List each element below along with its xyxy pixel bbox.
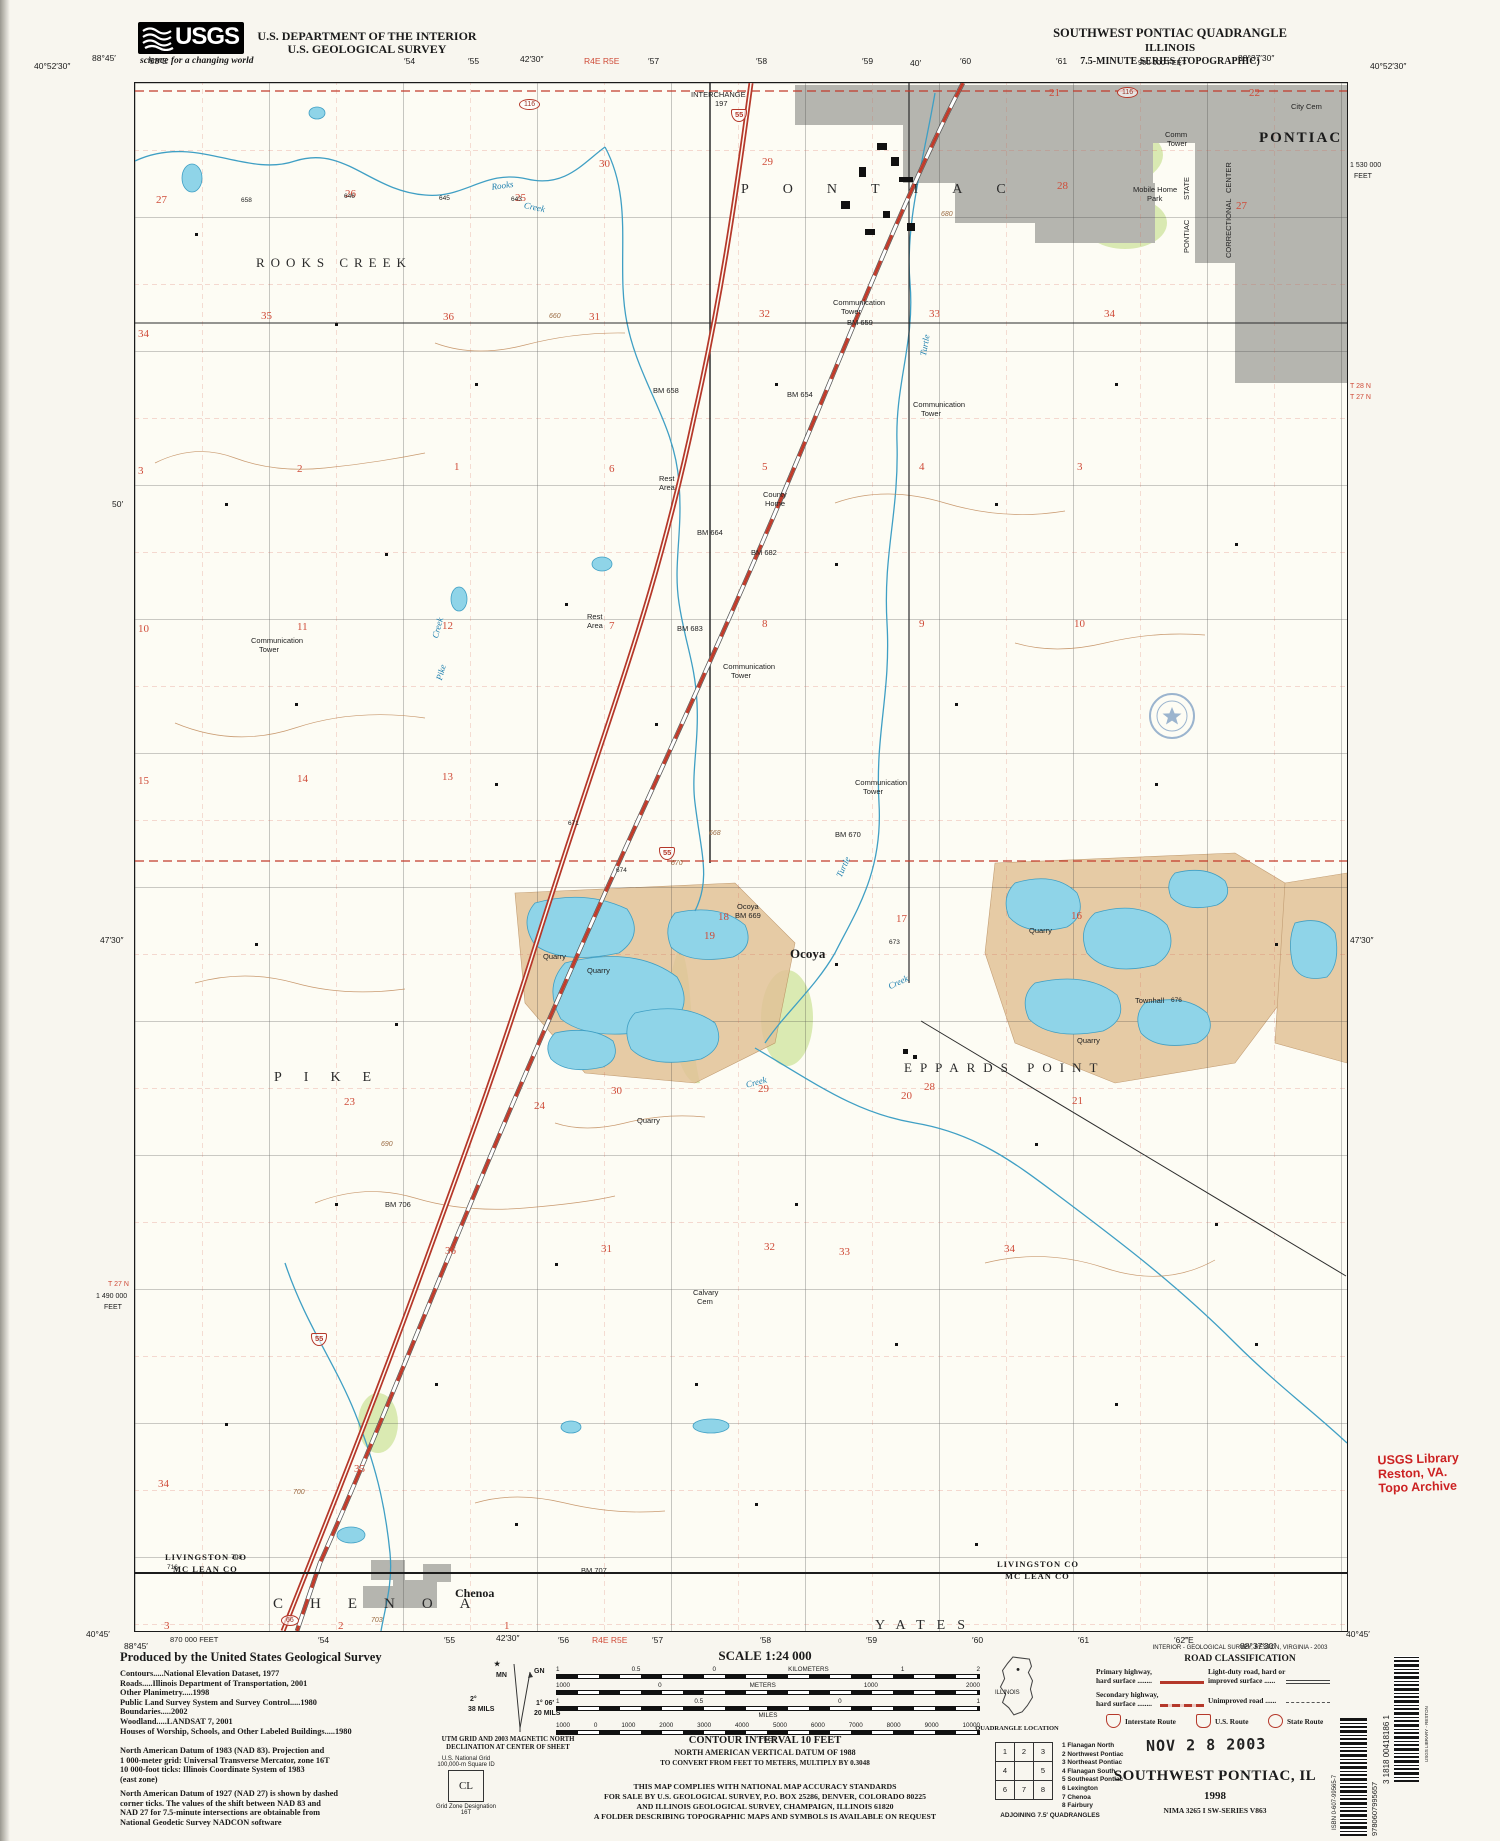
margin-label: 870 000 FEET [170, 1636, 218, 1644]
km-tick: 0.5 [632, 1666, 641, 1673]
margin-label: ′57 [652, 1636, 663, 1645]
quad-location-caption: QUADRANGLE LOCATION [975, 1725, 1059, 1732]
margin-label: 40′ [910, 59, 921, 68]
isbn-label: ISBN 0-607-99565-7 [1332, 1775, 1338, 1830]
map-name: SOUTHWEST PONTIAC, IL [1100, 1768, 1330, 1785]
state-route-shield-icon [1268, 1714, 1283, 1728]
m-tick: METERS [750, 1682, 776, 1689]
usgs-tagline: science for a changing world [140, 56, 253, 66]
mn-mils: 38 MILS [468, 1706, 494, 1713]
ft-tick: 4000 [735, 1722, 749, 1729]
datum-line: corner ticks. The values of the shift be… [120, 1799, 338, 1809]
margin-label: ′58 [756, 57, 767, 66]
illinois-outline-icon [997, 1656, 1037, 1718]
usgs-library-stamp: USGS Library Reston, VA. Topo Archive [1377, 1451, 1460, 1496]
margin-label: ′56 [558, 1636, 569, 1645]
margin-label: T 27 N [108, 1281, 129, 1288]
m-tick: 0 [658, 1682, 662, 1689]
margin-label: ′59 [862, 57, 873, 66]
datum-line: (east zone) [120, 1775, 330, 1785]
library-barcode-number: 3 1818 00418186 1 [1382, 1715, 1391, 1784]
mi-tick: 1 [556, 1698, 560, 1705]
datum-line: North American Datum of 1927 (NAD 27) is… [120, 1789, 338, 1799]
quad-title: SOUTHWEST PONTIAC QUADRANGLE [1040, 26, 1300, 41]
margin-label: 88°45′ [92, 54, 116, 63]
rc-primary-line [1160, 1681, 1204, 1684]
m-ticks: 10000METERS10002000 [556, 1682, 980, 1689]
accuracy-line: A FOLDER DESCRIBING TOPOGRAPHIC MAPS AND… [530, 1812, 1000, 1822]
margin-label: FEET [1354, 173, 1372, 180]
date-received-stamp: NOV 2 8 2003 [1146, 1735, 1267, 1755]
interstate-shield-icon [1106, 1714, 1121, 1728]
credit-line: Public Land Survey System and Survey Con… [120, 1698, 352, 1708]
interstate-shield-legend: Interstate Route [1106, 1714, 1176, 1728]
km-tick: 0 [713, 1666, 717, 1673]
margin-label: ′57 [648, 57, 659, 66]
gn-degrees: 1° 06′ [536, 1700, 554, 1707]
feet-conversion: TO CONVERT FROM FEET TO METERS, MULTIPLY… [600, 1759, 930, 1767]
margin-label: ′55 [468, 57, 479, 66]
usgs-logo-text: USGS [175, 23, 239, 51]
quad-state: ILLINOIS [1040, 42, 1300, 54]
rc-light-line [1286, 1680, 1330, 1684]
ft-tick: 2000 [659, 1722, 673, 1729]
us-route-shield-legend: U.S. Route [1196, 1714, 1248, 1728]
star-symbol: ★ [494, 1660, 500, 1668]
isbn-digits: 9780607995657 [1370, 1782, 1379, 1836]
state-route-shield-legend: State Route [1268, 1714, 1323, 1728]
margin-label: 47′30″ [100, 936, 124, 945]
isbn-barcode [1340, 1718, 1367, 1836]
mi-tick: 0.5 [694, 1698, 703, 1705]
usgs-logo: USGS [138, 22, 244, 54]
contour-block: CONTOUR INTERVAL 10 FEET NORTH AMERICAN … [600, 1735, 930, 1767]
ft-tick: 9000 [925, 1722, 939, 1729]
illinois-label: ILLINOIS [995, 1690, 1020, 1696]
adjoining-grid-cell: 4 [995, 1761, 1015, 1781]
library-barcode [1394, 1656, 1419, 1782]
ft-tick: 0 [594, 1722, 598, 1729]
accuracy-line: THIS MAP COMPLIES WITH NATIONAL MAP ACCU… [530, 1782, 1000, 1792]
ft-tick: 1000 [621, 1722, 635, 1729]
margin-label: ′62‴E [1174, 1636, 1194, 1645]
rc-primary-l2: hard surface ........ [1096, 1677, 1152, 1686]
margin-label: ′54 [318, 1636, 329, 1645]
interstate-shield-label: Interstate Route [1125, 1717, 1176, 1726]
rc-unimproved-line [1286, 1702, 1330, 1703]
m-tick: 1000 [556, 1682, 570, 1689]
margin-label: 40°45′ [1346, 1630, 1370, 1639]
margin-label: ′61 [1078, 1636, 1089, 1645]
road-classification-title: ROAD CLASSIFICATION [1090, 1654, 1390, 1664]
margin-label: ′58 [760, 1636, 771, 1645]
rc-primary-label: Primary highway, hard surface ........ [1096, 1668, 1152, 1685]
ft-tick: 6000 [811, 1722, 825, 1729]
rc-secondary-line [1160, 1704, 1204, 1707]
margin-label: 40°52′30″ [34, 62, 70, 71]
ft-tick: 3000 [697, 1722, 711, 1729]
km-bar [556, 1674, 980, 1679]
margin-label: 42′30″ [496, 1634, 520, 1643]
margin-label: 50′ [112, 500, 123, 509]
adjoining-quad-name: 2 Northwest Pontiac [1062, 1751, 1123, 1760]
km-tick: KILOMETERS [788, 1666, 829, 1673]
margin-label: 1 490 000 [96, 1293, 127, 1300]
margin-label: ′59 [866, 1636, 877, 1645]
ft-tick: 7000 [849, 1722, 863, 1729]
adjoining-grid-cell: 2 [1014, 1742, 1034, 1762]
adjoining-quad-name: 1 Flanagan North [1062, 1742, 1123, 1751]
ft-ticks: 1000010002000300040005000600070008000900… [556, 1722, 980, 1729]
map-year: 1998 [1100, 1790, 1330, 1802]
quadrangle-location: ILLINOIS QUADRANGLE LOCATION [975, 1656, 1059, 1732]
dept-line2: U.S. GEOLOGICAL SURVEY [252, 43, 482, 56]
margin-label: ′55 [444, 1636, 455, 1645]
ft-tick: 1000 [556, 1722, 570, 1729]
usng-box: U.S. National Grid 100,000-m Square ID C… [428, 1756, 504, 1816]
mn-degrees: 2° [470, 1696, 477, 1703]
adjoining-grid: 12345678 [995, 1742, 1052, 1799]
margin-label: ′60 [960, 57, 971, 66]
datum27-block: North American Datum of 1927 (NAD 27) is… [120, 1789, 338, 1827]
credit-line: Boundaries.....2002 [120, 1707, 352, 1717]
margin-label: R4E R5E [592, 1636, 627, 1645]
accuracy-line: AND ILLINOIS GEOLOGICAL SURVEY, CHAMPAIG… [530, 1802, 1000, 1812]
mi-unit: MILES [556, 1712, 980, 1719]
km-tick: 1 [556, 1666, 560, 1673]
adjoining-grid-cell: 3 [1033, 1742, 1053, 1762]
quad-series: 7.5-MINUTE SERIES (TOPOGRAPHIC) [1040, 56, 1300, 67]
us-route-shield-label: U.S. Route [1215, 1717, 1248, 1726]
datum-line: NAD 27 for 7.5-minute intersections are … [120, 1808, 338, 1818]
credit-line: Roads.....Illinois Department of Transpo… [120, 1679, 352, 1689]
rc-secondary-label: Secondary highway, hard surface ........ [1096, 1691, 1158, 1708]
margin-label: R4E R5E [584, 57, 619, 66]
mi-tick: 0 [838, 1698, 842, 1705]
ft-tick: 5000 [773, 1722, 787, 1729]
department-heading: U.S. DEPARTMENT OF THE INTERIOR U.S. GEO… [252, 30, 482, 56]
margin-label: FEET [104, 1304, 122, 1311]
library-barcode-label: USGS LIBRARY - RESTON [1424, 1706, 1429, 1762]
usng-zone: 16T [428, 1810, 504, 1816]
margin-label: 1 530 000 [1350, 162, 1381, 169]
us-route-shield-icon [1196, 1714, 1211, 1728]
ft-tick: 8000 [887, 1722, 901, 1729]
map-area: ROOKS CREEKPONTIACPIKEEPPARDS POINTCHENO… [134, 82, 1348, 1632]
accuracy-line: FOR SALE BY U.S. GEOLOGICAL SURVEY, P.O.… [530, 1792, 1000, 1802]
datum-line: National Geodetic Survey NADCON software [120, 1818, 338, 1828]
gn-label: GN [534, 1668, 545, 1675]
margin-label: ′60 [972, 1636, 983, 1645]
credit-line: Houses of Worship, Schools, and Other La… [120, 1727, 352, 1737]
adjoining-grid-cell [1014, 1761, 1034, 1781]
scan-edge [0, 0, 10, 1841]
margin-label: T 27 N [1350, 394, 1371, 401]
credit-line: Contours.....National Elevation Dataset,… [120, 1669, 352, 1679]
interior-imprint: INTERIOR - GEOLOGICAL SURVEY, RESTON, VI… [1090, 1645, 1390, 1651]
map-artwork [135, 83, 1347, 1631]
mi-bar [556, 1706, 980, 1711]
credit-line: Other Planimetry.....1998 [120, 1688, 352, 1698]
produced-by: Produced by the United States Geological… [120, 1650, 382, 1665]
rc-unimproved-l1: Unimproved road ...... [1208, 1697, 1276, 1706]
accuracy-block: THIS MAP COMPLIES WITH NATIONAL MAP ACCU… [530, 1782, 1000, 1822]
datum-line: North American Datum of 1983 (NAD 83). P… [120, 1746, 330, 1756]
rc-unimproved-label: Unimproved road ...... [1208, 1697, 1276, 1706]
m-tick: 1000 [864, 1682, 878, 1689]
mi-ticks: 10.501 [556, 1698, 980, 1705]
nima-series: NIMA 3265 I SW-SERIES V863 [1100, 1806, 1330, 1815]
usng-square-id: CL [448, 1770, 484, 1802]
stamp-line3: Topo Archive [1378, 1479, 1460, 1496]
margin-label: T 28 N [1350, 383, 1371, 390]
adjoining-grid-cell: 8 [1033, 1780, 1053, 1800]
adjoining-grid-cell: 6 [995, 1780, 1015, 1800]
km-tick: 1 [901, 1666, 905, 1673]
margin-label: 47′30″ [1350, 936, 1374, 945]
datum83-block: North American Datum of 1983 (NAD 83). P… [120, 1746, 330, 1784]
usng-subtitle: 100,000-m Square ID [428, 1762, 504, 1768]
adjoining-quad-name: 3 Northeast Pontiac [1062, 1759, 1123, 1768]
scale-title: SCALE 1:24 000 [600, 1648, 930, 1664]
rc-light-l2: improved surface ...... [1208, 1677, 1285, 1686]
quadrangle-heading: SOUTHWEST PONTIAC QUADRANGLE ILLINOIS 7.… [1040, 26, 1300, 67]
credits-block: Contours.....National Elevation Dataset,… [120, 1669, 352, 1736]
margin-label: 40°45′ [86, 1630, 110, 1639]
mn-label: MN [496, 1672, 507, 1679]
scale-bars: 10.50KILOMETERS12 10000METERS10002000 10… [556, 1666, 980, 1746]
rc-light-label: Light-duty road, hard or improved surfac… [1208, 1668, 1285, 1685]
margin-label: ′54 [404, 57, 415, 66]
adjoining-grid-cell: 1 [995, 1742, 1015, 1762]
datum-line: 1 000-meter grid: Universal Transverse M… [120, 1756, 330, 1766]
state-route-shield-label: State Route [1287, 1717, 1323, 1726]
margin-label: 42′30″ [520, 55, 544, 64]
adjoining-grid-cell: 7 [1014, 1780, 1034, 1800]
credit-line: Woodland.....LANDSAT 7, 2001 [120, 1717, 352, 1727]
rc-secondary-l2: hard surface ........ [1096, 1700, 1158, 1709]
m-bar [556, 1690, 980, 1695]
km-ticks: 10.50KILOMETERS12 [556, 1666, 980, 1673]
datum-line: 10 000-foot ticks: Illinois Coordinate S… [120, 1765, 330, 1775]
vertical-datum: NORTH AMERICAN VERTICAL DATUM OF 1988 [600, 1748, 930, 1757]
contour-interval: CONTOUR INTERVAL 10 FEET [600, 1735, 930, 1746]
margin-label: 40°52′30″ [1370, 62, 1406, 71]
adjoining-grid-cell: 5 [1033, 1761, 1053, 1781]
library-round-stamp-icon [1146, 690, 1198, 742]
topo-map-sheet: USGS science for a changing world U.S. D… [0, 0, 1500, 1841]
